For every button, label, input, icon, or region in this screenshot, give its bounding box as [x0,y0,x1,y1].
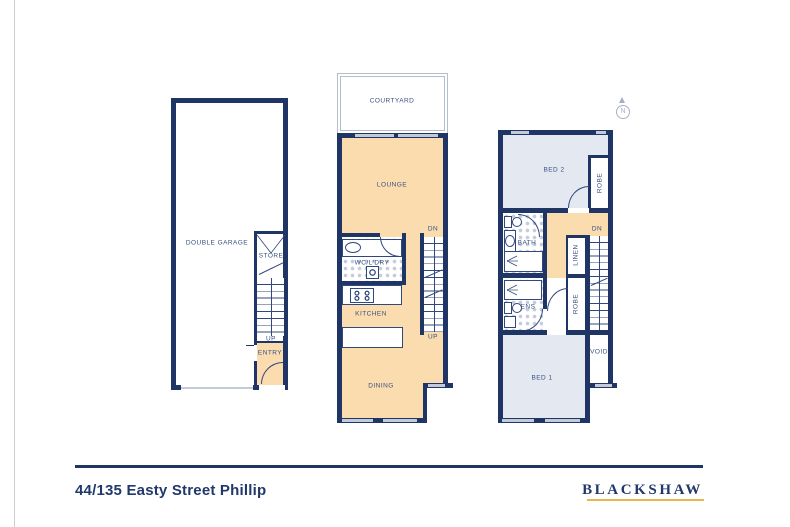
wall [423,383,427,423]
toilet-icon [504,302,512,314]
label-linen: LINEN [573,244,580,265]
stair-rail [271,278,272,336]
toilet-icon [504,216,512,228]
wall [171,98,288,103]
label-courtyard: COURTYARD [370,98,415,105]
footer-rule [75,465,703,468]
label-store: STORE [259,253,284,260]
stairs [424,237,443,332]
wall [171,98,176,390]
window [428,384,445,387]
wall [608,130,613,388]
floor-plan-page: DOUBLE GARAGE STORE UP ENTRY COURTYARD L… [0,0,790,527]
basin-icon [345,242,361,253]
brand-gold-underline [587,499,704,501]
entry-door-opening [259,385,285,390]
stair-rail [599,236,600,330]
under-stair-store-lines [256,234,286,254]
island-bench [342,327,403,348]
window [355,134,394,137]
stair-rail [434,237,435,332]
wall [543,213,547,278]
stairs [257,278,284,336]
wall [585,388,590,423]
label-wc-ldry: WC/L'DRY [355,259,390,266]
room-void [590,335,608,383]
label-robe1: ROBE [573,294,580,314]
wall [443,133,448,388]
label-bed1: BED 1 [531,375,552,382]
shower-icon [506,283,520,297]
window [342,419,373,422]
stair-direction-line [259,262,284,275]
label-bath: BATH [518,240,537,247]
basin-icon [505,235,515,247]
label-lounge: LOUNGE [377,182,407,189]
window [398,134,438,137]
window [545,419,580,422]
label-up: UP [428,334,438,341]
basin-icon [504,316,516,328]
stove-icon [350,288,374,303]
label-dining: DINING [368,383,393,390]
label-entry: ENTRY [258,350,282,357]
north-compass-icon: N [616,105,630,119]
door-leaf [246,345,254,346]
garage-entry-door-opening [254,345,257,361]
wall [402,233,406,285]
exterior-notch [427,388,448,423]
label-bed2: BED 2 [543,167,564,174]
window [596,131,606,134]
garage-door-line [181,387,253,389]
label-dn: DN [592,226,602,233]
shower-icon [506,254,520,268]
window [511,131,529,134]
page-edge-line [14,0,15,527]
address-text: 44/135 Easty Street Phillip [75,482,266,499]
washer-icon [366,266,379,279]
label-void: VOID [590,349,608,356]
window [502,419,534,422]
window [595,384,612,387]
north-arrow-icon [619,97,625,103]
label-robe2: ROBE [597,173,604,193]
brand-logo: BLACKSHAW [582,482,703,499]
hall-landing [545,213,567,278]
wall [588,155,608,158]
label-dn: DN [428,226,438,233]
label-kitchen: KITCHEN [355,311,387,318]
window [383,419,417,422]
label-double-garage: DOUBLE GARAGE [186,240,248,247]
